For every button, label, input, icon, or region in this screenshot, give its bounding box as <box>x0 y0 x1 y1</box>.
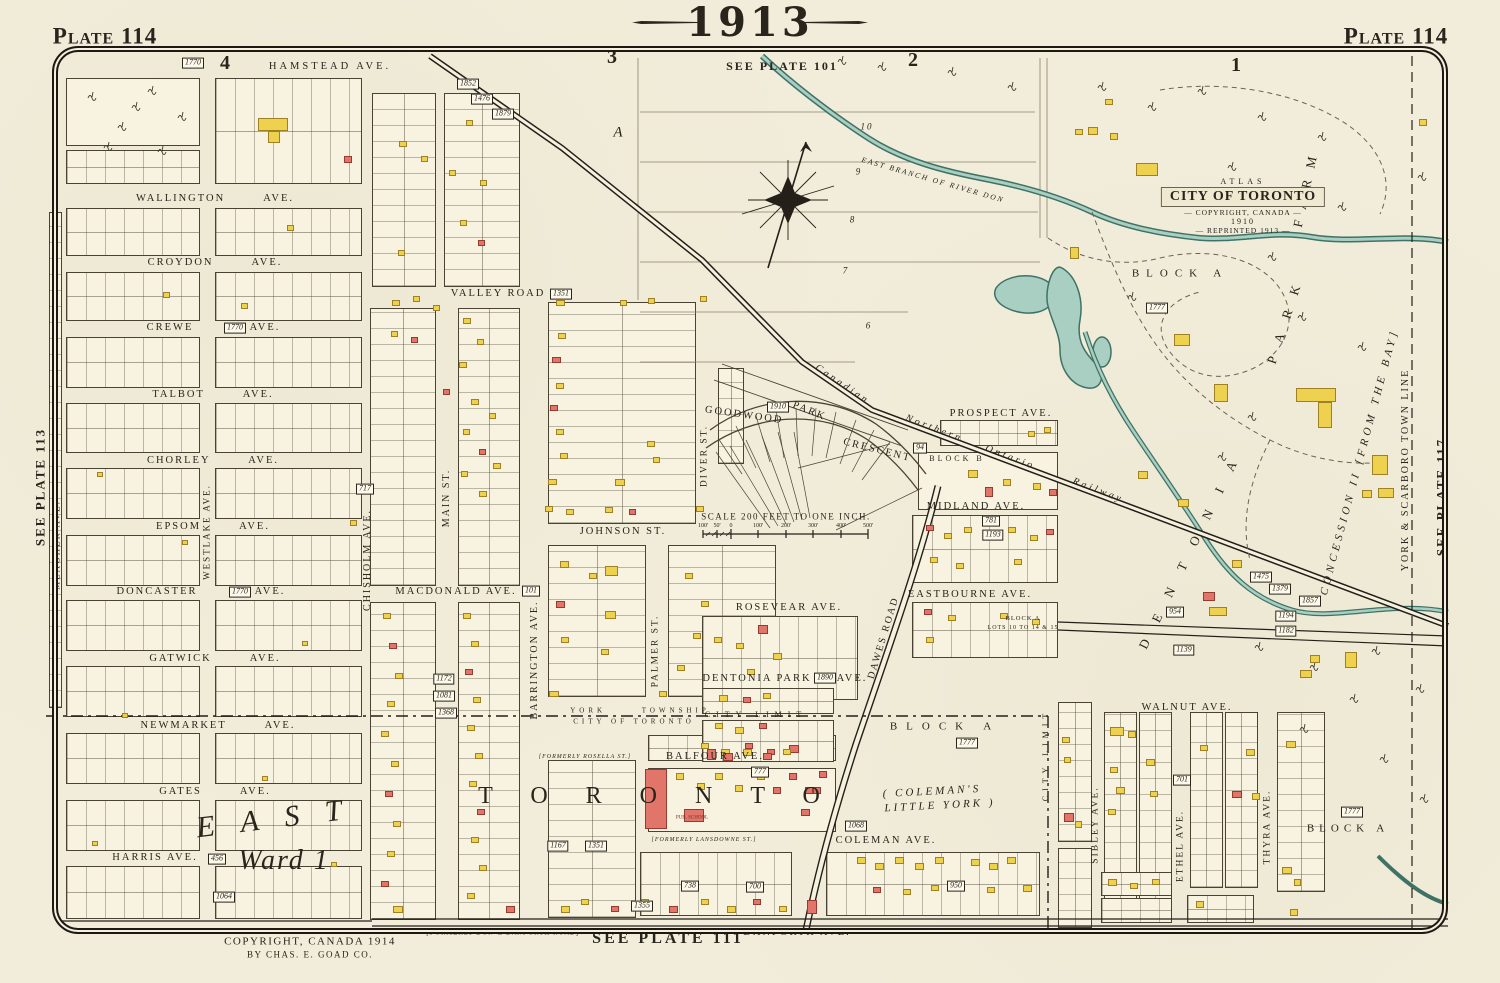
label-concession: CONCESSION II [FROM THE BAY] <box>1319 327 1401 596</box>
plaque-1852: 1852 <box>457 79 479 90</box>
street-label-rosevear: ROSEVEAR AVE. <box>736 603 842 614</box>
district-label-park: PARK <box>1265 269 1307 366</box>
plaque-1777: 1777 <box>956 738 978 749</box>
street-label-johnson: JOHNSON ST. <box>580 527 667 538</box>
scale-tick: 400' <box>836 523 846 529</box>
street-label-main: MAIN ST. <box>442 469 452 528</box>
area-label-block-a-east: BLOCK A <box>1307 824 1389 835</box>
plaque-1368: 1368 <box>435 708 457 719</box>
plaque-1351: 1351 <box>585 841 607 852</box>
plaque-954: 954 <box>1166 607 1184 618</box>
street-label-barrington: BARRINGTON AVE. <box>530 600 540 719</box>
street-label-ethel: ETHEL AVE. <box>1176 810 1186 882</box>
plaque-781: 781 <box>982 516 1000 527</box>
street-label-thyra: THYRA AVE. <box>1263 790 1273 865</box>
scale-tick: 500' <box>863 523 873 529</box>
plaque-1910: 1910 <box>767 402 789 413</box>
street-label-epsom: EPSOM AVE. <box>156 522 270 533</box>
plaque-1167: 1167 <box>547 841 568 852</box>
copyright-line-1: COPYRIGHT, CANADA 1914 <box>224 937 396 948</box>
plaque-1475: 1475 <box>1250 572 1272 583</box>
street-label-doncaster: DONCASTER <box>116 587 197 598</box>
plaque-738: 738 <box>681 881 699 892</box>
section-number-1: 1 <box>1231 55 1243 75</box>
plaque-456: 456 <box>208 854 226 865</box>
street-label-macdonald: MACDONALD AVE. <box>395 587 516 598</box>
scale-tick: 300' <box>808 523 818 529</box>
plaque-1139: 1139 <box>1173 645 1194 656</box>
scale-tick: 200' <box>781 523 791 529</box>
street-label-chorley: CHORLEY AVE. <box>147 456 279 467</box>
plaque-1770: 1770 <box>182 58 204 69</box>
street-label-newmarket: NEWMARKET AVE. <box>141 721 296 732</box>
edge-label-top: SEE PLATE 101 <box>726 60 838 72</box>
field-number: 10 <box>861 123 874 132</box>
edge-label-left: SEE PLATE 113 <box>34 428 47 546</box>
atlas-stamp: ATLAS CITY OF TORONTO — COPYRIGHT, CANAD… <box>1161 177 1325 235</box>
district-label-ward1: Ward 1 <box>238 847 330 875</box>
street-label-coleman: COLEMAN AVE. <box>836 836 937 847</box>
plaque-777: 777 <box>751 767 769 778</box>
street-label-talbot: TALBOT AVE. <box>152 390 273 401</box>
map-page: 1913 Plate 114 Plate 114 <box>0 0 1500 983</box>
area-label-block-a-north: BLOCK A <box>1132 269 1228 280</box>
formerly-label-don-danforth: [FORMERLY DON & DANFORTH ROAD] <box>426 930 580 937</box>
field-number: 8 <box>850 216 857 225</box>
section-number-3: 3 <box>607 47 619 67</box>
plaque-101: 101 <box>522 586 540 597</box>
street-label-doncaster-suffix: AVE. <box>255 587 286 598</box>
boundary-label-york-township: YORK TOWNSHIP <box>570 708 710 715</box>
plaque-1193: 1193 <box>982 530 1003 541</box>
street-label-crewe-suffix: AVE. <box>250 323 281 334</box>
plaque-1068: 1068 <box>845 821 867 832</box>
street-label-valley-road: VALLEY ROAD <box>451 289 546 300</box>
edge-label-bottom: SEE PLATE 111 <box>592 931 744 947</box>
street-label-dentonia: DENTONIA PARK <box>702 674 811 685</box>
street-label-diver: DIVER ST. <box>700 425 710 487</box>
plaque-1857: 1857 <box>1299 596 1321 607</box>
street-label-balfour: BALFOUR AVE. <box>666 752 764 763</box>
railway-label-railway: Railway <box>1071 477 1125 506</box>
street-label-city-limit-vertical: CITY LIMIT <box>1042 709 1050 802</box>
street-label-sibley: SIBLEY AVE. <box>1091 786 1101 863</box>
plaque-717: 717 <box>356 484 374 495</box>
plaque-701: 701 <box>1173 775 1191 786</box>
area-label-block-b: BLOCK B <box>929 455 984 463</box>
formerly-label-lansdowne: [FORMERLY LANSDOWNE ST.] <box>652 837 757 843</box>
street-label-goodwood-crescent: CRESCENT <box>842 437 912 464</box>
labels-layer: SEE PLATE 101 SEE PLATE 113 SEE PLATE 11… <box>0 0 1500 983</box>
plaque-700: 700 <box>746 882 764 893</box>
street-label-harris: HARRIS AVE. <box>112 853 197 864</box>
street-label-midland: MIDLAND AVE. <box>927 502 1025 513</box>
street-label-city-limit-horizontal: CITY LIMIT <box>705 711 808 719</box>
scale-tick: 100' <box>698 523 708 529</box>
creek-label: EAST BRANCH OF RIVER DON <box>861 156 1006 204</box>
plaque-1777: 1777 <box>1146 303 1168 314</box>
stamp-copyright: — COPYRIGHT, CANADA — <box>1161 208 1325 217</box>
district-label-toronto: TORONTO <box>478 784 858 808</box>
street-label-palmer: PALMER ST. <box>651 615 661 688</box>
plaque-1064: 1064 <box>213 892 235 903</box>
street-label-crewe: CREWE <box>147 323 194 334</box>
section-number-2: 2 <box>908 50 920 70</box>
plaque-1182: 1182 <box>1275 626 1296 637</box>
plaque-1355: 1355 <box>631 901 653 912</box>
field-label-a: A <box>613 126 624 141</box>
plaque-1890: 1890 <box>814 673 836 684</box>
street-label-croydon: CROYDON AVE. <box>148 258 283 269</box>
label-public-school: PUB. SCHOOL <box>676 816 708 821</box>
stamp-reprinted: — REPRINTED 1913 — <box>1161 226 1325 235</box>
scale-tick: 100' <box>753 523 763 529</box>
area-label-lots-block: BLOCK A <box>1006 616 1041 623</box>
district-label-east: EAST <box>195 793 370 844</box>
district-label-colemans-2: LITTLE YORK ) <box>884 798 996 815</box>
stamp-year: 1910 <box>1161 217 1325 226</box>
street-label-hamstead: HAMSTEAD AVE. <box>269 62 391 73</box>
plaque-1476: 1476 <box>471 94 493 105</box>
plaque-1770: 1770 <box>224 323 246 334</box>
stamp-city-of-toronto: CITY OF TORONTO <box>1161 187 1325 207</box>
street-label-gates: GATES AVE. <box>159 787 271 798</box>
street-label-dawes-road: DAWES ROAD <box>867 596 902 681</box>
area-label-block-a-middle: BLOCK A <box>890 722 1000 733</box>
street-label-eastbourne: EASTBOURNE AVE. <box>908 590 1032 601</box>
scale-tick: 50' <box>713 523 720 529</box>
street-label-meagher: MEAGHER AVE. <box>53 500 62 590</box>
railway-label-canadian: Canadian <box>813 363 871 407</box>
area-label-lots-note: LOTS 10 TO 14 & 15 <box>988 625 1059 631</box>
street-label-goodwood-park: PARK <box>791 401 827 424</box>
street-label-danforth: DANFORTH AVE. <box>743 928 850 939</box>
plaque-950: 950 <box>947 881 965 892</box>
plaque-1081: 1081 <box>433 691 455 702</box>
edge-label-right: SEE PLATE 117 <box>1435 438 1448 556</box>
street-label-gatwick: GATWICK AVE. <box>149 654 280 665</box>
formerly-label-rosella: [FORMERLY ROSELLA ST.] <box>539 754 632 760</box>
plaque-1770: 1770 <box>229 587 251 598</box>
street-label-dentonia-suffix: AVE. <box>837 674 868 685</box>
street-label-walnut: WALNUT AVE. <box>1141 703 1232 714</box>
scale-tick: 0 <box>730 523 733 529</box>
scale-text: SCALE 200 FEET TO ONE INCH. <box>701 513 871 522</box>
street-label-chisholm: CHISHOLM AVE. <box>363 509 373 611</box>
plaque-1777: 1777 <box>1341 807 1363 818</box>
street-label-westlake: WESTLAKE AVE. <box>203 484 212 580</box>
label-town-line: YORK & SCARBORO TOWN LINE <box>1401 369 1411 571</box>
stamp-atlas: ATLAS <box>1161 177 1325 186</box>
railway-label-ontario: Ontario <box>984 444 1037 472</box>
plaque-1172: 1172 <box>433 674 454 685</box>
plaque-1879: 1879 <box>492 109 514 120</box>
plaque-1351: 1351 <box>550 289 572 300</box>
plaque-94: 94 <box>913 443 927 454</box>
copyright-line-2: BY CHAS. E. GOAD CO. <box>247 951 373 960</box>
field-number: 6 <box>866 322 873 331</box>
street-label-wallington: WALLINGTON AVE. <box>136 194 294 205</box>
street-label-prospect: PROSPECT AVE. <box>950 409 1053 420</box>
boundary-label-city-of-toronto: CITY OF TORONTO <box>573 719 695 726</box>
district-label-dentonia: DENTONIA <box>1136 441 1247 651</box>
field-number: 7 <box>843 267 850 276</box>
field-number: 9 <box>856 168 863 177</box>
plaque-1379: 1379 <box>1269 584 1291 595</box>
plaque-1194: 1194 <box>1275 611 1296 622</box>
section-number-4: 4 <box>220 53 232 73</box>
